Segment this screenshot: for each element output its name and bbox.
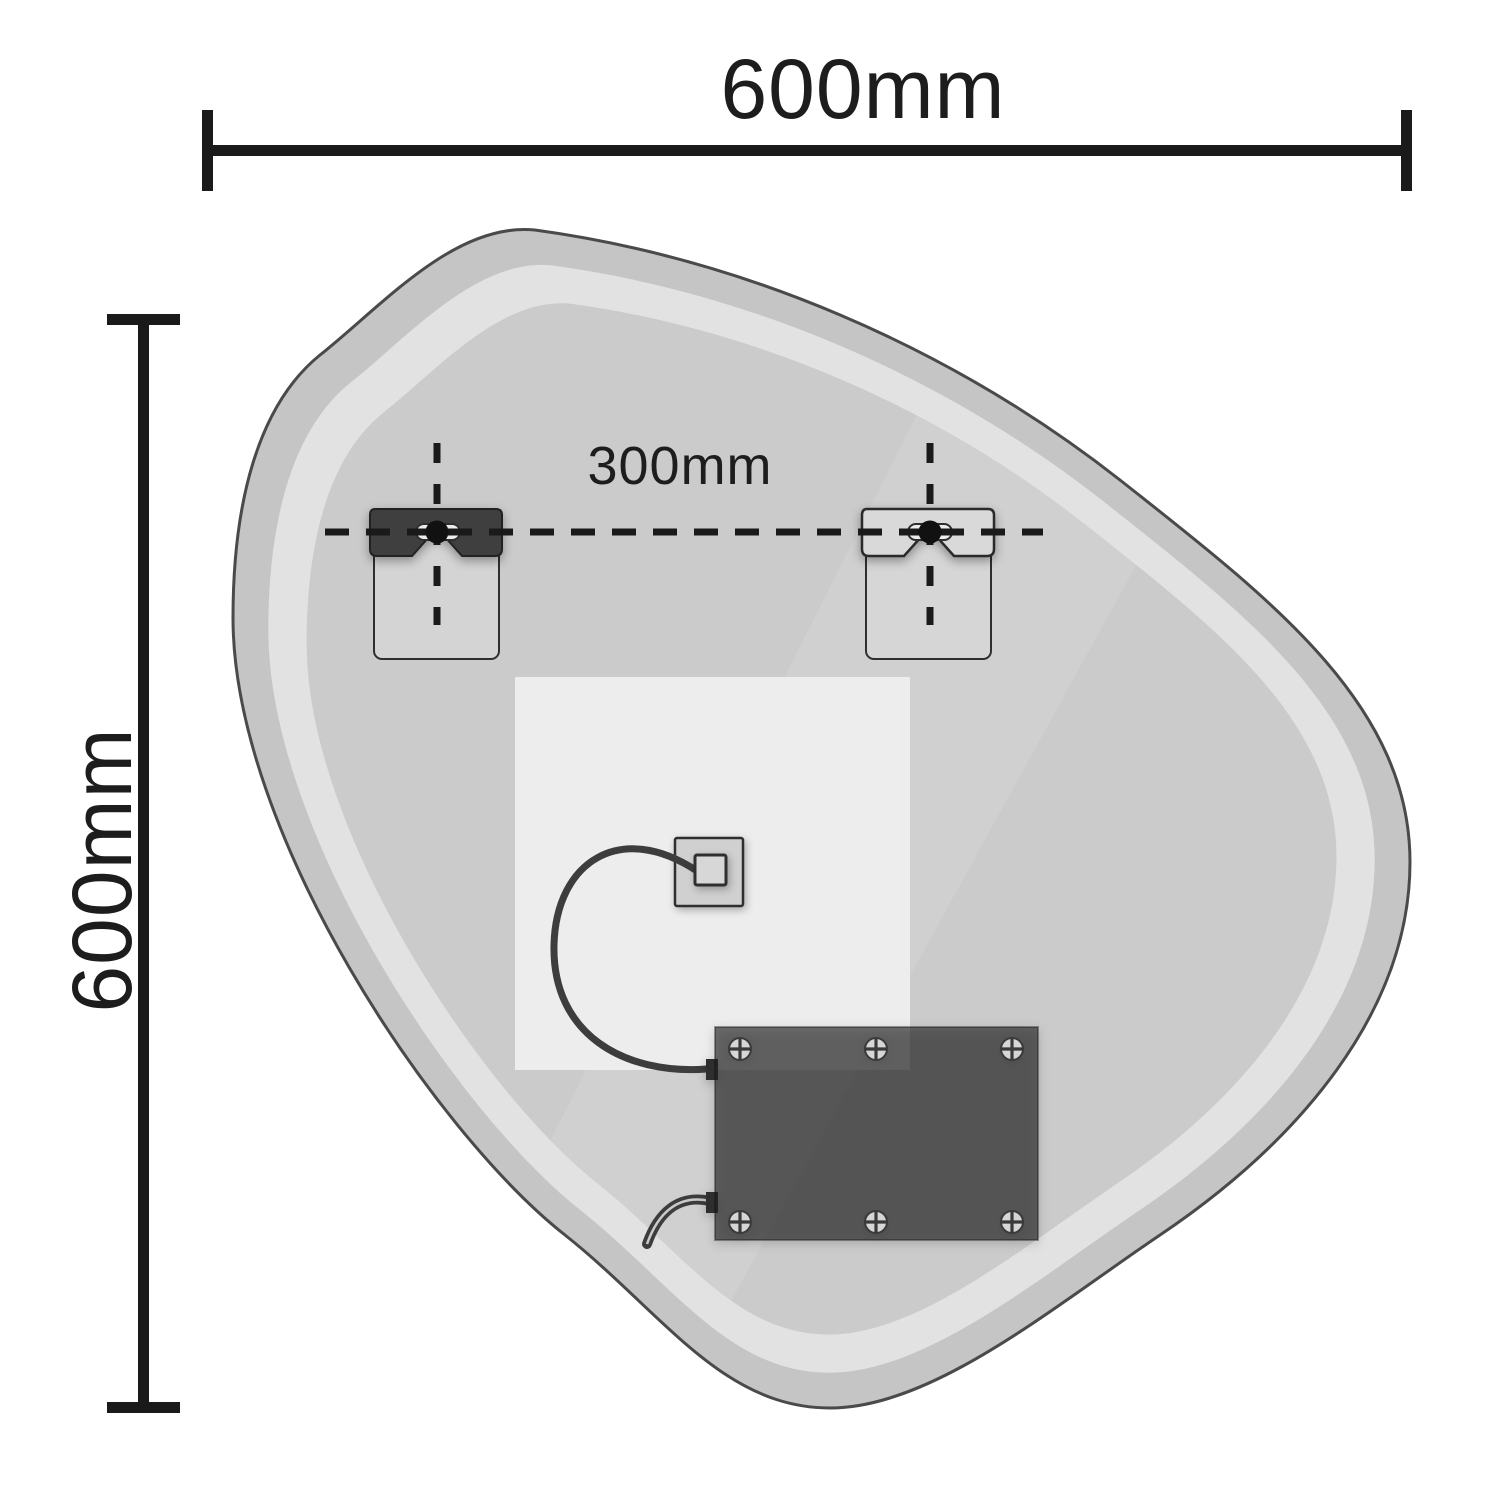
height-dimension-tick-bottom <box>107 1402 180 1413</box>
width-dimension-tick-left <box>202 110 213 191</box>
diagram-canvas: 300mm 600mm 600mm <box>0 0 1500 1500</box>
height-dimension-tick-top <box>107 314 180 325</box>
fixing-centres-label: 300mm <box>587 436 772 496</box>
height-dimension-label: 600mm <box>55 727 149 1012</box>
mirror-technical-diagram: 300mm 600mm 600mm <box>0 0 1500 1500</box>
width-dimension-label: 600mm <box>720 42 1005 136</box>
fixing-hole-right <box>919 521 942 544</box>
led-driver-box <box>706 1027 1038 1240</box>
width-dimension: 600mm <box>202 42 1412 191</box>
fixing-hole-left <box>426 521 449 544</box>
sensor-button <box>695 855 726 885</box>
width-dimension-tick-right <box>1401 110 1412 191</box>
height-dimension: 600mm <box>55 314 180 1413</box>
width-dimension-line <box>207 145 1407 156</box>
